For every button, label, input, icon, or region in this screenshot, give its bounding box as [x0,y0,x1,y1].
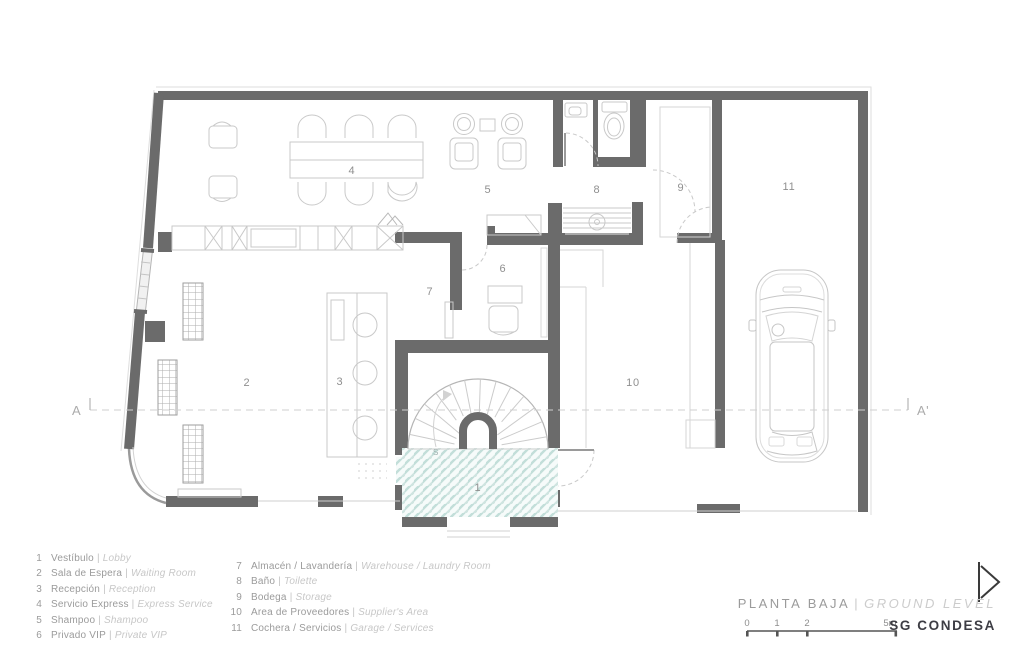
legend-item-8: 8Baño|Toilette [228,574,491,589]
styling-stations-row [172,213,403,250]
waiting-benches [158,283,203,483]
legend-item-7: 7Almacén / Lavandería|Warehouse / Laundr… [228,559,491,574]
room-label-4: 4 [349,165,356,177]
legend-column-2: 7Almacén / Lavandería|Warehouse / Laundr… [228,559,491,636]
legend-item-9: 9Bodega|Storage [228,590,491,605]
floor-plan-sheet: S [0,0,1024,663]
legend-item-1: 1Vestíbulo|Lobby [30,551,213,566]
legend-item-4: 4Servicio Express|Express Service [30,597,213,612]
waiting-armchairs [209,122,237,202]
spiral-stair: S [408,379,548,457]
room-label-1: 1 [475,482,482,494]
room-label-3: 3 [337,376,344,388]
room-label-5: 5 [485,184,492,196]
legend-item-11: 11Cochera / Servicios|Garage / Services [228,621,491,636]
plan-title-es: PLANTA BAJA [738,596,851,611]
section-start-label: A [72,403,81,418]
project-brand: SG CONDESA [738,618,996,633]
section-end-label: A' [917,403,929,418]
legend-item-10: 10Area de Proveedores|Supplier's Area [228,605,491,620]
title-block: PLANTA BAJA|GROUND LEVEL SG CONDESA [738,596,996,633]
curved-corner-wall [129,447,166,503]
room-label-2: 2 [244,377,251,389]
room-label-6: 6 [500,263,507,275]
plan-title: PLANTA BAJA|GROUND LEVEL [738,596,996,611]
legend-item-2: 2Sala de Espera|Waiting Room [30,566,213,581]
room-label-8: 8 [594,184,601,196]
room-label-11: 11 [782,181,795,193]
section-line: A A' [72,398,929,418]
legend-item-3: 3Recepción|Reception [30,582,213,597]
express-service-table [290,115,423,205]
room-label-7: 7 [427,286,434,298]
reception-desk [178,293,387,497]
door-leaves [558,133,594,450]
room-label-10: 10 [626,377,640,389]
legend-column-1: 1Vestíbulo|Lobby 2Sala de Espera|Waiting… [30,551,213,643]
shampoo-stations [450,114,526,170]
legend-item-6: 6Privado VIP|Private VIP [30,628,213,643]
stair-direction-label: S [433,448,438,457]
room-label-9: 9 [678,182,685,194]
car [749,270,835,462]
legend-item-5: 5Shampoo|Shampoo [30,613,213,628]
plan-title-en: GROUND LEVEL [864,596,996,611]
storage-shelf [660,107,710,237]
